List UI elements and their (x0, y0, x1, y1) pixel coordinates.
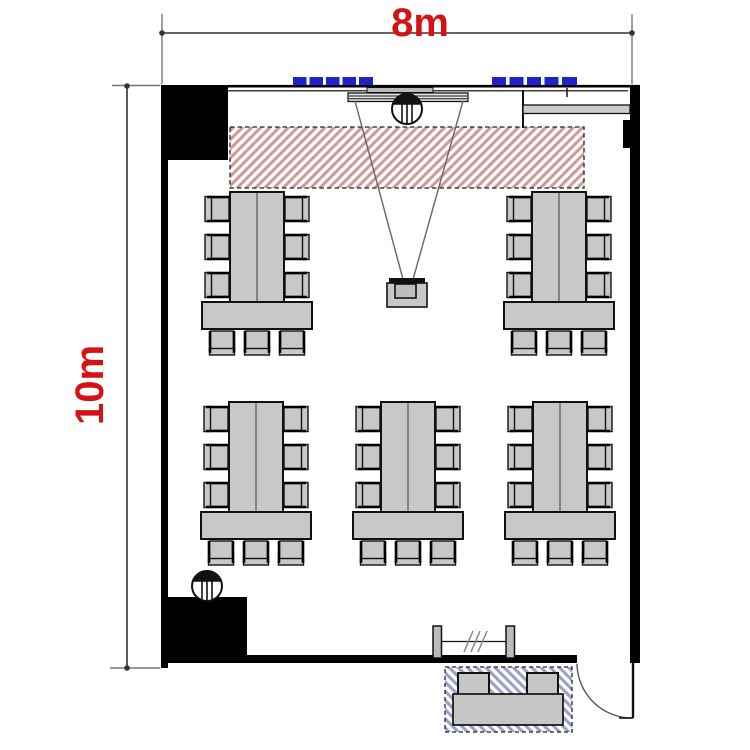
table-cluster-bottom-left (201, 402, 311, 565)
floor-plan-canvas: 8m 10m (0, 0, 750, 750)
wall-left (161, 85, 168, 668)
light-strip-left (293, 77, 373, 85)
column-bottom-left (163, 597, 247, 659)
coat-rack (433, 626, 515, 658)
dimension-height-label: 10m (68, 345, 112, 425)
entrance-door (577, 663, 633, 718)
outside-bench (453, 694, 563, 725)
light-strip-right (492, 77, 577, 85)
ceiling-fixture-rear (192, 571, 222, 601)
outside-bench-zone (445, 667, 572, 732)
floor-plan-page: 8m 10m (0, 0, 750, 750)
projection-screen (293, 88, 470, 102)
stool-left (458, 673, 489, 695)
dimension-width-label: 8m (391, 1, 449, 45)
table-cluster-top-left (202, 192, 312, 355)
door-swing-arc (577, 664, 632, 718)
ceiling-fixture-front (392, 94, 422, 124)
dimension-width: 8m (159, 1, 635, 84)
table-cluster-bottom-right (505, 402, 615, 565)
wall-right (630, 85, 640, 663)
table-cluster-top-right (504, 192, 614, 355)
wall-counter (523, 88, 630, 128)
table-cluster-bottom-middle (353, 402, 463, 565)
dimension-height: 10m (68, 83, 160, 671)
projector (387, 278, 427, 307)
wall-right-pilaster (623, 120, 630, 148)
projection-zone (230, 127, 584, 188)
column-top-left (161, 85, 228, 160)
stool-right (527, 673, 558, 695)
